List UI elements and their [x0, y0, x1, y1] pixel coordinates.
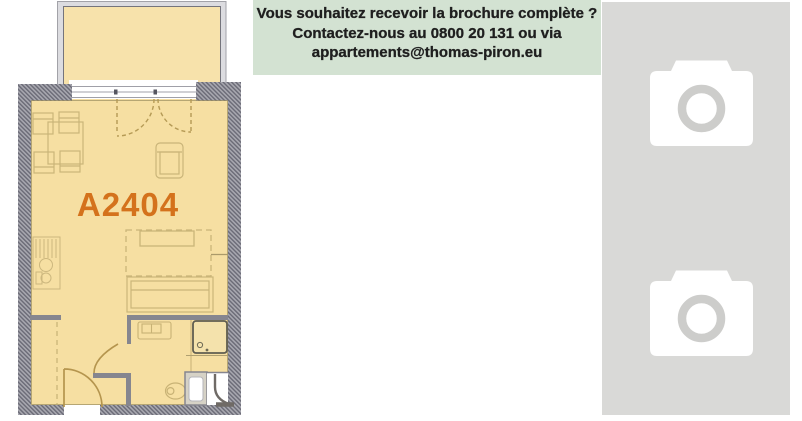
svg-text:A2404: A2404	[77, 186, 179, 223]
